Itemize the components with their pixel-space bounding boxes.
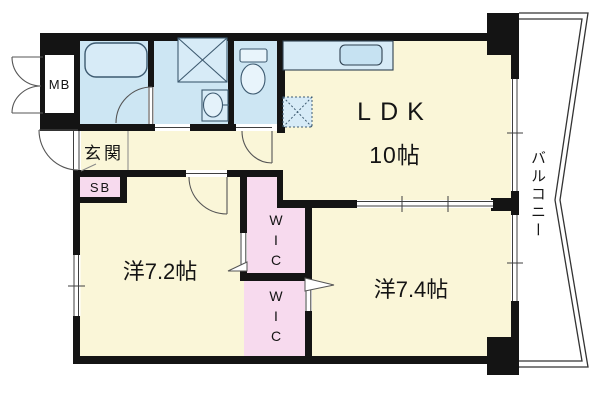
ldk-label: LDK <box>330 98 460 127</box>
opening-bath-door <box>148 87 154 124</box>
room-floors <box>76 36 512 360</box>
opening-western72-door <box>186 170 227 177</box>
western74-label: 洋7.4帖 <box>346 272 476 304</box>
wic-upper-label: WIC <box>268 212 284 272</box>
fridge-space-icon <box>283 97 312 127</box>
opening-toilet-door <box>236 124 277 131</box>
washbasin-icon <box>202 90 229 121</box>
opening-entrance <box>72 131 81 170</box>
washer-pan-icon <box>178 38 227 82</box>
floorplan-drawing <box>0 0 600 403</box>
meterbox-doors <box>12 57 43 113</box>
bathtub-icon <box>85 43 147 77</box>
opening-wic-upper <box>240 233 247 265</box>
western72-label: 洋7.2帖 <box>95 254 225 286</box>
entrance-label: 玄関 <box>84 139 124 164</box>
wic-lower-label: WIC <box>268 288 284 348</box>
balcony-label: バルコニー <box>527 150 548 280</box>
wall-block-topright <box>487 13 519 55</box>
wall-block-bottomright <box>487 337 519 375</box>
ldk-size-label: 10帖 <box>330 136 460 170</box>
shoebox-label: SB <box>81 180 120 195</box>
toilet-icon <box>240 49 267 94</box>
kitchen-counter-icon <box>283 41 393 70</box>
opening-washroom-door <box>155 124 190 131</box>
meterbox-label: MB <box>44 77 75 92</box>
floorplan: MB 玄関 SB LDK 10帖 洋7.2帖 洋7.4帖 WIC WIC バルコ… <box>0 0 600 403</box>
